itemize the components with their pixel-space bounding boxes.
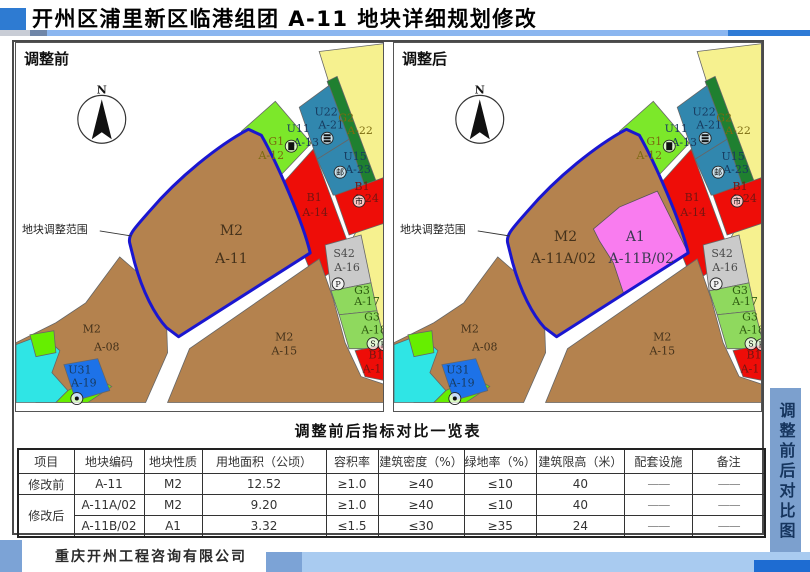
parcel-label: U31 <box>446 364 469 377</box>
table-cell: 40 <box>536 474 624 495</box>
sidebar-label: 调整前后对比图 <box>774 402 798 542</box>
post-office-icon-glyph: 邮 <box>336 167 344 177</box>
scope-label: 地块调整范围 <box>400 222 466 236</box>
table-cell: A1 <box>144 516 202 538</box>
land-use-map-after: N地块调整范围G1A-12U11A-13U22A-21G2A-22U15A-23… <box>394 43 762 412</box>
well-icon-glyph <box>75 397 79 401</box>
panel-label-after: 调整后 <box>402 48 447 69</box>
table-row: A-11B/02A13.32≤1.5≤30≥3524———— <box>18 516 765 538</box>
panel-label-before: 调整前 <box>24 48 69 69</box>
parcel-label: M2 <box>653 331 671 344</box>
parcel-label: S42 <box>333 247 354 260</box>
table-header-cell: 绿地率（%） <box>464 449 536 474</box>
parcel-label: B1 <box>369 349 384 362</box>
footer-bar-light <box>302 552 810 572</box>
table-cell: ≤30 <box>378 516 464 538</box>
parking-icon-glyph: P <box>335 280 341 289</box>
table-cell: A-11 <box>74 474 144 495</box>
parcel-label: A-17 <box>353 295 380 308</box>
utility-icon-glyph <box>702 134 709 136</box>
parcel-label: A-16 <box>333 261 360 274</box>
map-panel-after: 调整后 N地块调整范围G1A-12U11A-13U22A-21G2A-22U15… <box>393 42 762 412</box>
parcel-label: A-15 <box>648 345 675 358</box>
planning-sheet: 开州区浦里新区临港组团 A-11 地块详细规划修改 调整前 N地块调整范围G1A… <box>0 0 810 572</box>
footer-accent-mid <box>266 552 302 572</box>
map-panel-before: 调整前 N地块调整范围G1A-12U11A-13U22A-21G2A-22U15… <box>15 42 384 412</box>
north-label: N <box>97 83 107 96</box>
s-facility-icon-glyph: S <box>370 340 375 349</box>
parcel-label: A-12 <box>258 149 285 162</box>
parcel-label-main: M2 <box>554 229 577 245</box>
sidebar-tab: 调整前后对比图 <box>770 388 801 556</box>
parcel-label: U15 <box>721 150 744 163</box>
page-title: 开州区浦里新区临港组团 A-11 地块详细规划修改 <box>32 3 537 33</box>
utility-icon-glyph <box>702 137 709 139</box>
parcel-label: B1 <box>747 349 762 362</box>
header-rule-blue <box>728 30 810 36</box>
parcel-label: M2 <box>461 323 479 336</box>
parcel-label: A-14 <box>301 206 328 219</box>
table-header-row: 项目地块编码地块性质用地面积（公顷）容积率建筑密度（%）绿地率（%）建筑限高（米… <box>18 449 765 474</box>
utility-icon-glyph <box>324 140 331 142</box>
table-cell: ≤10 <box>464 495 536 516</box>
footer-bar-dark <box>754 560 810 572</box>
table-header-cell: 地块性质 <box>144 449 202 474</box>
parcel-label-main: A-11B/02 <box>608 251 674 267</box>
h-facility-icon-glyph: H <box>759 341 762 350</box>
header-rule-gray <box>0 30 30 36</box>
parcel-label: A-14 <box>679 206 706 219</box>
parcel-label: M2 <box>275 331 293 344</box>
utility-icon-glyph <box>324 137 331 139</box>
table-cell: ≥35 <box>464 516 536 538</box>
parcel-label: U22 <box>315 105 338 118</box>
table-header-cell: 地块编码 <box>74 449 144 474</box>
parcel-label: G3 <box>364 311 380 324</box>
table-cell: ≤10 <box>464 474 536 495</box>
parcel-label: A-18 <box>738 324 762 337</box>
table-row: 修改后A-11A/02M29.20≥1.0≥40≤1040———— <box>18 495 765 516</box>
substation-icon-glyph <box>288 142 294 150</box>
parcel-label: G2 <box>338 111 354 124</box>
parcel-label: A-17 <box>731 295 758 308</box>
market-icon-glyph: 市 <box>733 196 741 206</box>
table-cell: 12.52 <box>202 474 326 495</box>
parcel-label: B1 <box>307 191 322 204</box>
parcel-label: G1 <box>646 135 662 148</box>
company-name: 重庆开州工程咨询有限公司 <box>55 546 247 566</box>
parcel-label: A-18 <box>360 324 384 337</box>
parcel-label: S42 <box>711 247 732 260</box>
parcel-label-main: M2 <box>220 223 243 239</box>
table-cell: 3.32 <box>202 516 326 538</box>
table-cell: M2 <box>144 495 202 516</box>
parcel-label: A-1 <box>362 363 382 376</box>
table-cell: 24 <box>536 516 624 538</box>
parcel-label: G2 <box>716 111 732 124</box>
table-header-cell: 容积率 <box>326 449 378 474</box>
substation-icon-glyph <box>666 142 672 150</box>
table-cell: A-11B/02 <box>74 516 144 538</box>
footer-accent-left <box>0 540 22 572</box>
table-header-cell: 建筑密度（%） <box>378 449 464 474</box>
table-cell: —— <box>624 516 692 538</box>
scope-label: 地块调整范围 <box>22 222 88 236</box>
parcel-label: G1 <box>268 135 284 148</box>
parcel-label: A-12 <box>636 149 663 162</box>
parcel-label: A-08 <box>93 341 120 354</box>
table-cell: —— <box>692 516 765 538</box>
parcel-label: A-19 <box>70 377 97 390</box>
table-cell: —— <box>624 495 692 516</box>
table-cell: ≥1.0 <box>326 495 378 516</box>
table-header-cell: 建筑限高（米） <box>536 449 624 474</box>
parcel-label: U31 <box>68 364 91 377</box>
parcel-label: U11 <box>287 122 310 135</box>
parcel-label: A-22 <box>724 124 751 137</box>
parcel-label: A-1 <box>740 363 760 376</box>
parcel-label: M2 <box>83 323 101 336</box>
land-use-map-before: N地块调整范围G1A-12U11A-13U22A-21G2A-22U15A-23… <box>16 43 384 412</box>
parcel-label: A-23 <box>344 163 371 176</box>
parcel-label: B1 <box>685 191 700 204</box>
table-cell: M2 <box>144 474 202 495</box>
table-cell: 40 <box>536 495 624 516</box>
table-cell: ≥1.0 <box>326 474 378 495</box>
parcel-label: A-08 <box>471 341 498 354</box>
parcel-label: A-23 <box>722 163 749 176</box>
parcel-label: U11 <box>665 122 688 135</box>
market-icon-glyph: 市 <box>355 196 363 206</box>
parcel-label: A-19 <box>448 377 475 390</box>
table-header-cell: 用地面积（公顷） <box>202 449 326 474</box>
table-header-cell: 项目 <box>18 449 74 474</box>
table-cell: ≥40 <box>378 495 464 516</box>
table-cell: ≥40 <box>378 474 464 495</box>
north-label: N <box>475 83 485 96</box>
table-cell: 9.20 <box>202 495 326 516</box>
parcel-label: U15 <box>343 150 366 163</box>
table-item-cell: 修改前 <box>18 474 74 495</box>
well-icon-glyph <box>453 397 457 401</box>
table-row: 修改前A-11M212.52≥1.0≥40≤1040———— <box>18 474 765 495</box>
header-accent-square <box>0 8 26 32</box>
table-title: 调整前后指标对比一览表 <box>12 420 764 441</box>
table-header-cell: 配套设施 <box>624 449 692 474</box>
header-rule-lightblue <box>47 30 728 36</box>
table-cell: ≤1.5 <box>326 516 378 538</box>
utility-icon-glyph <box>324 134 331 136</box>
h-facility-icon-glyph: H <box>381 341 384 350</box>
table-header-cell: 备注 <box>692 449 765 474</box>
comparison-table: 项目地块编码地块性质用地面积（公顷）容积率建筑密度（%）绿地率（%）建筑限高（米… <box>17 448 766 538</box>
parcel-label: A-15 <box>270 345 297 358</box>
parcel-label-main: A-11 <box>214 251 248 267</box>
s-facility-icon-glyph: S <box>748 340 753 349</box>
parcel-label: A-16 <box>711 261 738 274</box>
parcel-label: U22 <box>693 105 716 118</box>
post-office-icon-glyph: 邮 <box>714 167 722 177</box>
table-item-cell: 修改后 <box>18 495 74 538</box>
utility-icon-glyph <box>702 140 709 142</box>
parcel-label: G3 <box>742 311 758 324</box>
parcel-label: A-22 <box>346 124 373 137</box>
table-cell: —— <box>692 495 765 516</box>
header-rule-slate <box>30 30 47 36</box>
parcel-label-main: A1 <box>625 229 645 245</box>
table-cell: A-11A/02 <box>74 495 144 516</box>
parcel-label-main: A-11A/02 <box>530 251 596 267</box>
table-cell: —— <box>624 474 692 495</box>
table-cell: —— <box>692 474 765 495</box>
parking-icon-glyph: P <box>713 280 719 289</box>
